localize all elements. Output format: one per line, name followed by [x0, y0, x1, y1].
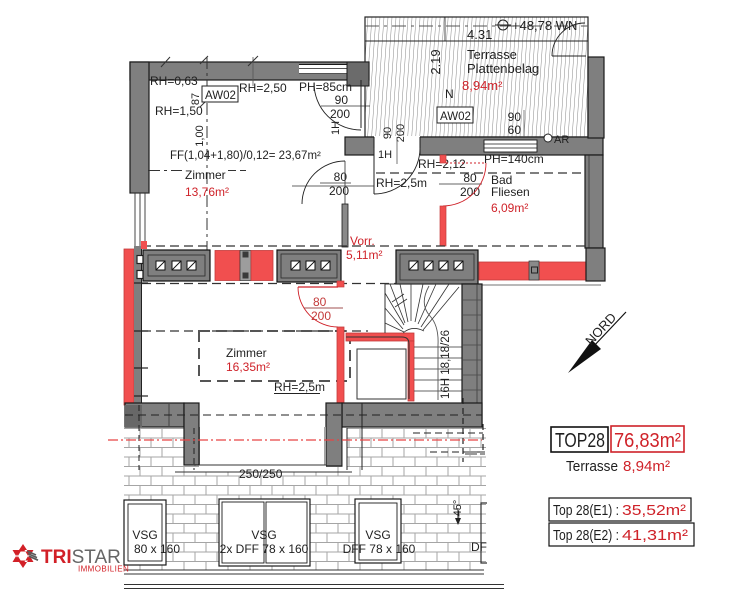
svg-text:PH=140cm: PH=140cm: [484, 152, 544, 166]
svg-text:DF: DF: [471, 540, 487, 554]
svg-text:N: N: [445, 87, 454, 101]
svg-text:16,35m²: 16,35m²: [226, 360, 270, 374]
svg-text:VSG: VSG: [365, 528, 390, 542]
svg-text:2x DFF 78 x 160: 2x DFF 78 x 160: [220, 542, 309, 556]
svg-text:Plattenbelag: Plattenbelag: [467, 61, 539, 76]
svg-text:RH=1,50: RH=1,50: [155, 104, 203, 118]
svg-text:200: 200: [330, 107, 350, 121]
svg-text:PH=85cm: PH=85cm: [299, 80, 352, 94]
svg-text:AR: AR: [554, 134, 569, 146]
svg-text:90: 90: [335, 93, 349, 107]
svg-text:35,52m²: 35,52m²: [622, 502, 686, 519]
svg-text:Fliesen: Fliesen: [491, 185, 530, 199]
svg-text:41,31m²: 41,31m²: [622, 527, 688, 544]
svg-text:RH=2,50: RH=2,50: [239, 81, 287, 95]
svg-text:90: 90: [382, 127, 394, 139]
svg-text:Zimmer: Zimmer: [226, 346, 267, 360]
svg-text:6,09m²: 6,09m²: [491, 201, 528, 215]
svg-text:2.19: 2.19: [428, 49, 443, 74]
svg-text:AW02: AW02: [440, 111, 471, 123]
svg-text:76,83m²: 76,83m²: [614, 430, 681, 452]
svg-text:Zimmer: Zimmer: [185, 168, 226, 182]
svg-text:1H: 1H: [330, 121, 342, 135]
svg-text:AW02: AW02: [205, 90, 236, 102]
svg-text:1H: 1H: [378, 149, 392, 161]
svg-text:250/250: 250/250: [239, 467, 283, 481]
svg-text:+48,78 WN: +48,78 WN: [512, 18, 577, 33]
svg-text:Terrasse: Terrasse: [467, 47, 517, 62]
svg-text:1,00: 1,00: [194, 125, 206, 146]
svg-text:80 x 160: 80 x 160: [134, 542, 180, 556]
svg-text:Terrasse: Terrasse: [566, 458, 618, 475]
svg-text:4.31: 4.31: [467, 27, 492, 42]
svg-text:RH=2,5m: RH=2,5m: [376, 176, 427, 190]
svg-text:8,94m²: 8,94m²: [623, 458, 670, 475]
svg-text:DFF 78 x 160: DFF 78 x 160: [343, 542, 416, 556]
svg-text:8,94m²: 8,94m²: [462, 78, 503, 93]
svg-text:TOP28: TOP28: [555, 430, 605, 452]
svg-text:60: 60: [508, 123, 522, 137]
svg-text:VSG: VSG: [251, 528, 276, 542]
svg-text:200: 200: [329, 184, 349, 198]
svg-text:FF(1,04+1,80)/0,12= 23,67m²: FF(1,04+1,80)/0,12= 23,67m²: [170, 150, 321, 162]
svg-text:80: 80: [313, 295, 327, 309]
svg-text:90: 90: [508, 110, 522, 124]
svg-text:RH=2,5m: RH=2,5m: [274, 380, 325, 394]
svg-text:16H 18,18/26: 16H 18,18/26: [440, 330, 452, 399]
svg-text:VSG: VSG: [132, 528, 157, 542]
svg-text:13,76m²: 13,76m²: [185, 185, 229, 199]
svg-text:200: 200: [311, 309, 331, 323]
svg-text:5,11m²: 5,11m²: [346, 248, 382, 262]
svg-text:Top 28(E2) :: Top 28(E2) :: [553, 527, 619, 544]
svg-text:RH=0,63: RH=0,63: [150, 74, 198, 88]
svg-text:Top 28(E1) :: Top 28(E1) :: [553, 502, 619, 519]
svg-text:IMMOBILIEN: IMMOBILIEN: [78, 565, 129, 574]
